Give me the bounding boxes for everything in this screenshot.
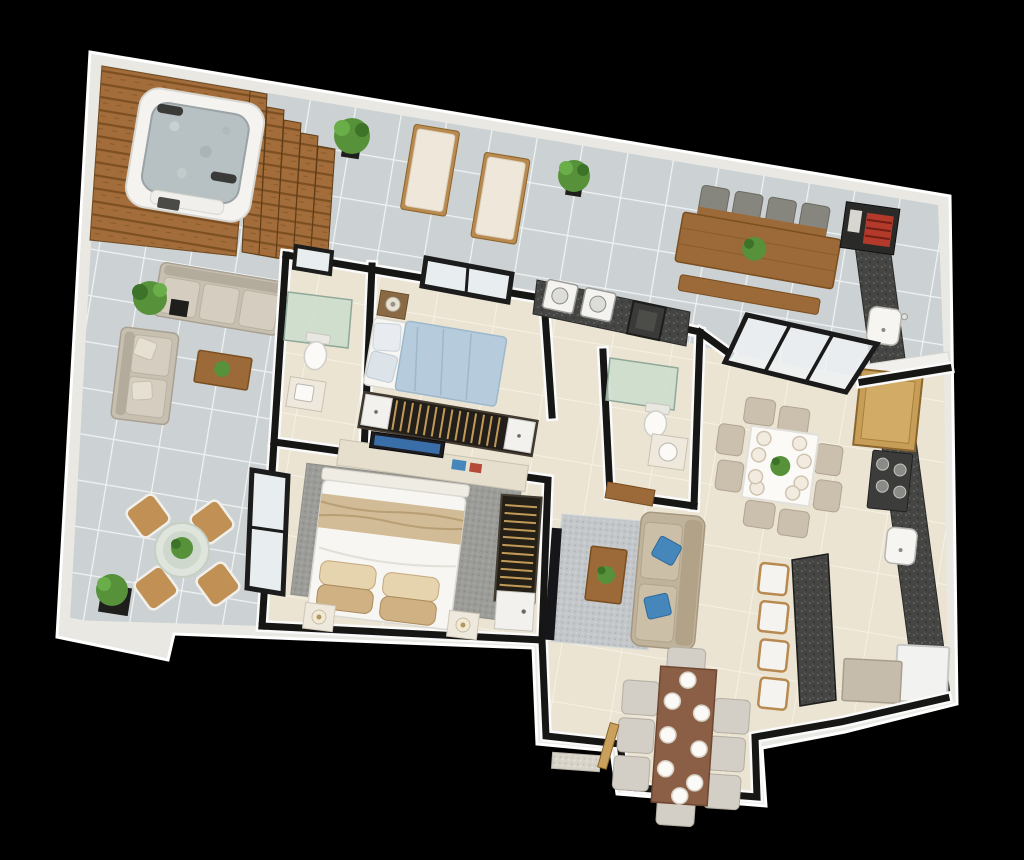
nook-chair <box>617 717 655 753</box>
kitchen-sink <box>884 527 918 566</box>
nightstand-lamp <box>377 290 409 319</box>
entry-threshold <box>552 752 601 771</box>
nook-chair <box>712 698 750 734</box>
nightstand-lamp <box>303 602 336 631</box>
dishwasher <box>842 659 902 704</box>
dining-chair <box>777 508 810 538</box>
hot-tub <box>123 85 267 224</box>
bath1-window <box>294 246 332 274</box>
vanity-sink <box>648 434 688 471</box>
nook-chair <box>612 755 650 791</box>
dining-chair <box>814 443 844 476</box>
vanity-sink <box>286 377 326 412</box>
floor-plan-render <box>0 0 1024 860</box>
dining-chair <box>715 423 745 456</box>
sofa-taupe <box>630 511 705 650</box>
nook-chair <box>621 680 659 716</box>
nightstand-lamp <box>447 610 480 639</box>
dining-chair <box>743 500 776 530</box>
glass-shower <box>606 358 678 410</box>
bbq-grill-station <box>840 202 900 255</box>
dining-chair <box>714 459 744 492</box>
coffee-table-plant <box>585 546 627 604</box>
floor-plan-svg <box>0 0 1024 860</box>
dining-chair <box>743 397 776 427</box>
breakfast-island <box>792 554 836 706</box>
dining-chair <box>813 479 843 512</box>
cooktop <box>867 450 913 512</box>
nook-chair <box>708 736 746 772</box>
outdoor-sofa-2seat <box>110 327 179 425</box>
